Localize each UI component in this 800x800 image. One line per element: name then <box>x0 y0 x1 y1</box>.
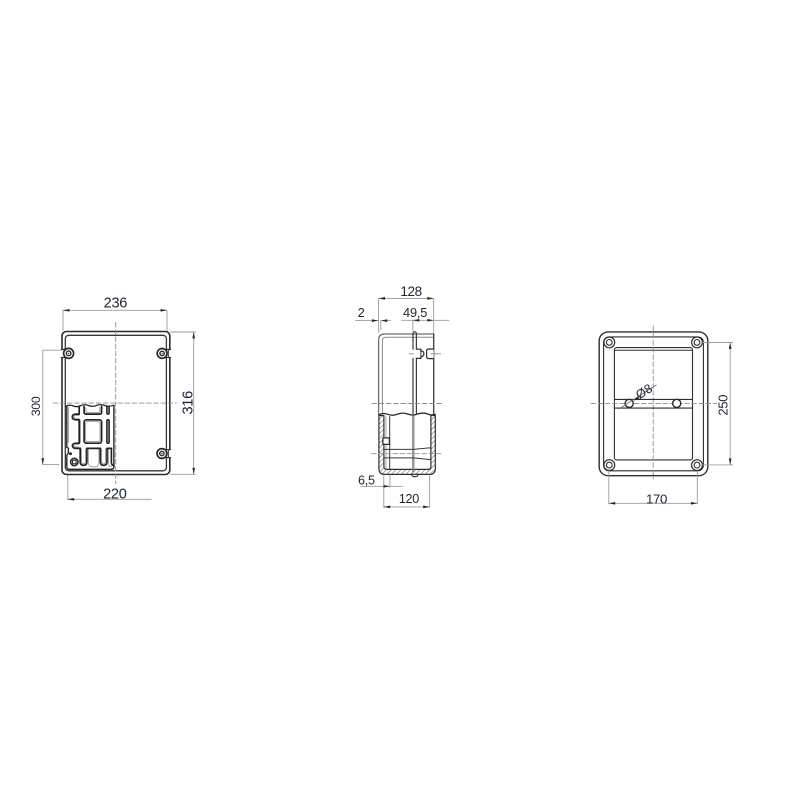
svg-text:49,5: 49,5 <box>403 305 427 320</box>
svg-text:300: 300 <box>29 396 43 416</box>
svg-text:170: 170 <box>646 491 667 506</box>
svg-text:2: 2 <box>358 306 365 320</box>
svg-text:220: 220 <box>103 487 127 503</box>
svg-text:250: 250 <box>715 395 730 416</box>
svg-text:236: 236 <box>104 295 128 311</box>
svg-text:128: 128 <box>400 284 421 299</box>
svg-text:316: 316 <box>180 391 196 415</box>
svg-text:120: 120 <box>399 492 419 506</box>
svg-text:6,5: 6,5 <box>358 473 375 487</box>
